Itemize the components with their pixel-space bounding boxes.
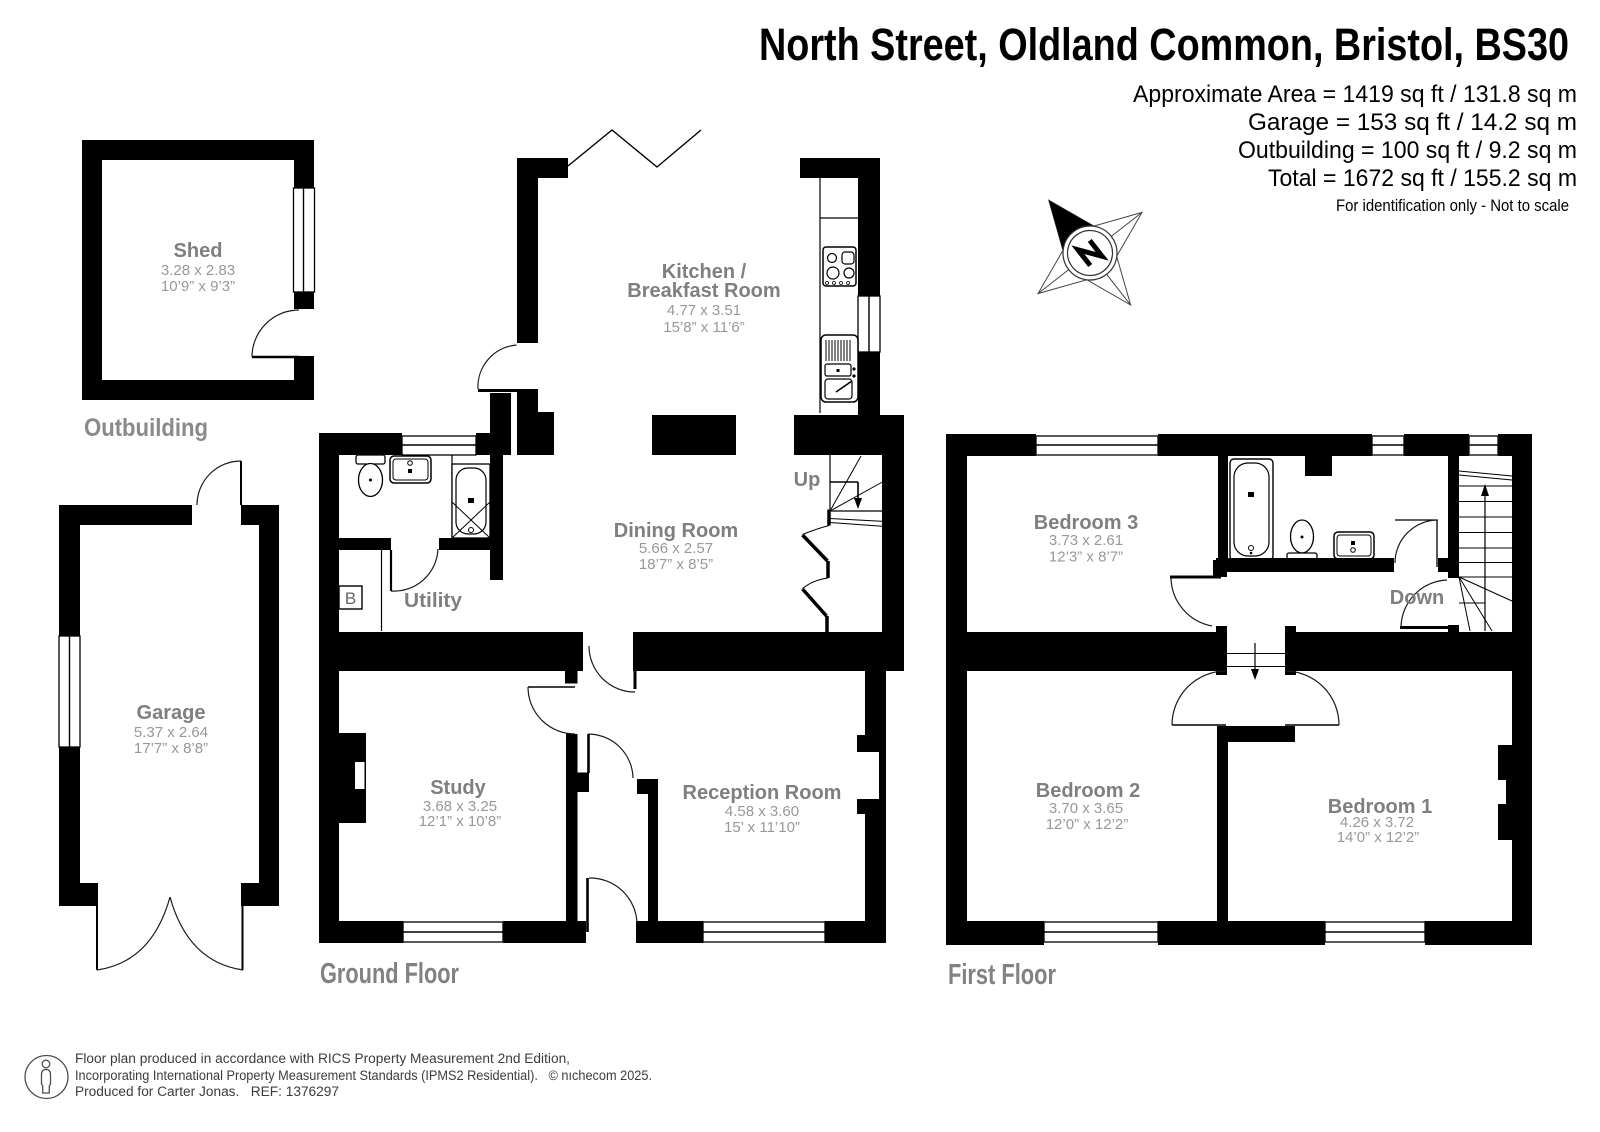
svg-text:4.58 x 3.60: 4.58 x 3.60: [725, 803, 799, 820]
svg-text:For identification only - Not: For identification only - Not to scale: [1336, 196, 1569, 215]
svg-text:Utility: Utility: [404, 590, 463, 612]
svg-text:4.77 x 3.51: 4.77 x 3.51: [667, 302, 741, 319]
svg-text:B: B: [345, 589, 356, 608]
svg-text:14’0” x 12’2”: 14’0” x 12’2”: [1337, 829, 1420, 846]
svg-text:Ground Floor: Ground Floor: [320, 958, 459, 990]
svg-text:Garage: Garage: [137, 702, 206, 724]
svg-text:12’3” x 8’7”: 12’3” x 8’7”: [1049, 549, 1123, 566]
svg-text:Up: Up: [794, 469, 821, 491]
svg-text:Incorporating International Pr: Incorporating International Property Mea…: [75, 1068, 652, 1083]
svg-text:10’9” x 9’3”: 10’9” x 9’3”: [161, 278, 235, 295]
svg-text:Total = 1672 sq ft / 155.2 sq: Total = 1672 sq ft / 155.2 sq m: [1268, 165, 1577, 192]
svg-text:Bedroom 2: Bedroom 2: [1036, 780, 1140, 802]
svg-text:3.70 x 3.65: 3.70 x 3.65: [1049, 800, 1123, 817]
svg-text:Down: Down: [1390, 587, 1444, 609]
svg-text:5.66 x 2.57: 5.66 x 2.57: [639, 540, 713, 557]
svg-text:Study: Study: [430, 777, 486, 799]
svg-text:Breakfast Room: Breakfast Room: [627, 280, 780, 302]
svg-text:12’1” x 10’8”: 12’1” x 10’8”: [419, 813, 502, 830]
svg-text:18’7” x 8’5”: 18’7” x 8’5”: [639, 556, 713, 573]
svg-text:3.28 x 2.83: 3.28 x 2.83: [161, 262, 235, 279]
svg-text:Garage = 153 sq ft / 14.2 sq m: Garage = 153 sq ft / 14.2 sq m: [1248, 109, 1577, 136]
svg-text:Approximate Area = 1419 sq ft: Approximate Area = 1419 sq ft / 131.8 sq…: [1133, 81, 1577, 108]
svg-text:3.73 x 2.61: 3.73 x 2.61: [1049, 532, 1123, 549]
svg-text:Outbuilding: Outbuilding: [84, 414, 208, 442]
svg-text:North Street, Oldland Common,: North Street, Oldland Common, Bristol, B…: [759, 19, 1569, 70]
svg-text:Shed: Shed: [174, 240, 223, 262]
svg-text:15’8” x 11’6”: 15’8” x 11’6”: [663, 319, 744, 336]
svg-text:17’7” x 8’8”: 17’7” x 8’8”: [134, 740, 208, 757]
svg-text:Reception Room: Reception Room: [683, 782, 842, 804]
svg-text:Outbuilding = 100 sq ft / 9.2: Outbuilding = 100 sq ft / 9.2 sq m: [1238, 137, 1577, 164]
svg-text:Produced for Carter Jonas. R: Produced for Carter Jonas. REF: 1376297: [75, 1084, 339, 1099]
svg-text:First Floor: First Floor: [948, 959, 1056, 991]
svg-text:Dining Room: Dining Room: [614, 520, 738, 542]
svg-text:Bedroom 3: Bedroom 3: [1034, 512, 1138, 534]
svg-text:15’ x 11’10”: 15’ x 11’10”: [724, 819, 800, 836]
svg-text:Floor plan produced in accorda: Floor plan produced in accordance with R…: [75, 1051, 570, 1066]
svg-text:12’0” x 12’2”: 12’0” x 12’2”: [1046, 816, 1129, 833]
svg-text:5.37 x 2.64: 5.37 x 2.64: [134, 724, 208, 741]
